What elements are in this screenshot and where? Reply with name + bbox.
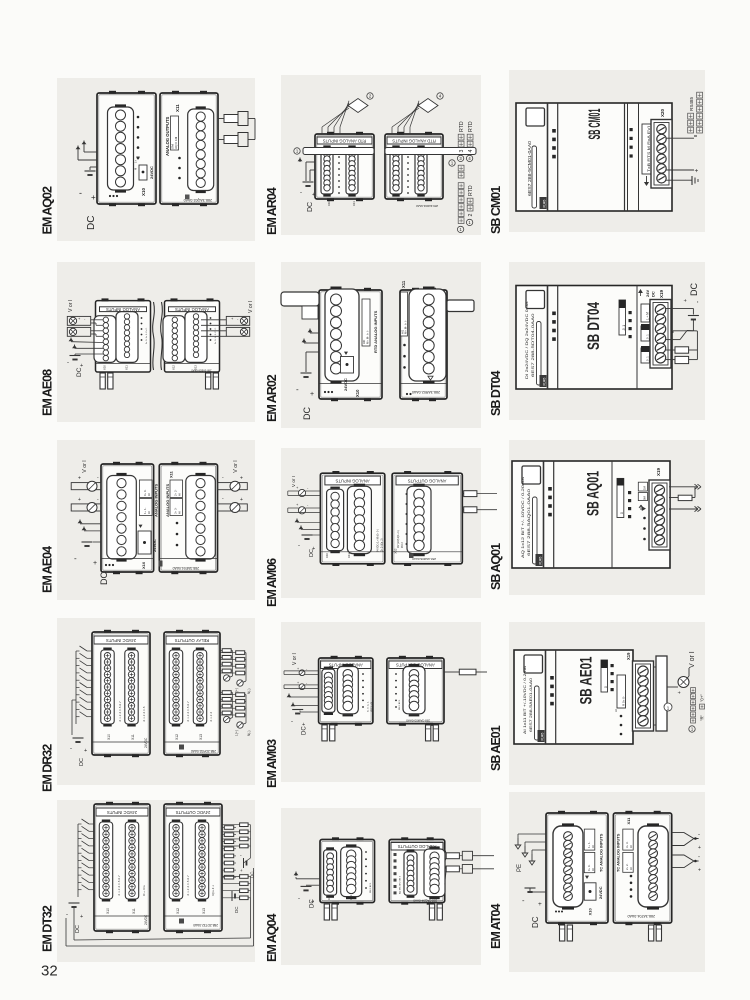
svg-text:EM AR04: EM AR04 [265,187,279,235]
svg-text:.0 .1: .0 .1 [646,356,650,362]
svg-text:+: + [78,476,81,482]
svg-text:+: + [297,667,299,671]
svg-text:24VDC: 24VDC [598,886,603,899]
svg-text:PIU 2: PIU 2 [402,542,404,548]
svg-text:288-2DT32-0AA0: 288-2DT32-0AA0 [193,923,218,927]
svg-text:M: M [134,168,138,170]
svg-text:2: 2 [468,214,474,217]
svg-text:X11: X11 [626,817,631,825]
svg-text:.0 .1 .2 .3 .4 .5 .6 .7: .0 .1 .2 .3 .4 .5 .6 .7 [119,701,122,722]
svg-text:+: + [683,299,689,302]
svg-text:-: - [291,719,293,725]
svg-text:AI: AI [591,868,595,871]
svg-text:X10: X10 [106,908,110,914]
svg-text:DC: DC [79,758,85,766]
svg-text:24VDC: 24VDC [343,378,348,391]
svg-text:AI1: AI1 [401,329,405,334]
svg-text:AI 1x11 BIT +/-10VDC / 0-2mA: AI 1x11 BIT +/-10VDC / 0-2mA [522,666,527,734]
svg-text:RTD: RTD [459,121,465,132]
svg-text:+: + [677,691,683,694]
svg-text:6ES7 288-5AQ01-0AA0: 6ES7 288-5AQ01-0AA0 [526,488,531,556]
svg-text:EM AE08: EM AE08 [41,369,55,416]
svg-text:.0 .1 .2 .3 .4 .5: .0 .1 .2 .3 .4 .5 [143,706,146,722]
svg-text:+: + [93,560,97,567]
svg-text:24VDC: 24VDC [144,737,148,748]
svg-text:-: - [698,855,700,861]
svg-text:SB DT04: SB DT04 [585,301,603,350]
svg-text:32: 32 [41,963,58,980]
svg-text:EM DT32: EM DT32 [41,905,55,952]
svg-text:X11: X11 [131,734,135,740]
svg-text:RTD ANALOG INPUTS: RTD ANALOG INPUTS [373,310,378,353]
svg-text:0+ 0- 1+ 1-: 0+ 0- 1+ 1- [368,701,370,712]
svg-text:-: - [296,385,299,394]
svg-text:SB AQ01: SB AQ01 [489,543,503,590]
svg-text:0M 0 1M 1: 0M 0 1M 1 [370,882,372,893]
svg-text:X11: X11 [175,104,180,112]
svg-text:SB CM01: SB CM01 [586,109,604,140]
svg-text:.0 .1 .2 .3 .4 .5 .6 .7: .0 .1 .2 .3 .4 .5 .6 .7 [187,875,190,896]
svg-text:AI: AI [629,845,633,848]
svg-text:X11: X11 [401,280,406,288]
svg-text:288-3AR04-0AA0: 288-3AR04-0AA0 [416,204,438,208]
svg-text:RTD ANALOG INPUTS: RTD ANALOG INPUTS [323,138,367,143]
svg-text:0M: 0M [643,495,647,500]
svg-text:24VDC INPUTS: 24VDC INPUTS [107,810,137,815]
svg-text:288-3AR02-0AA0: 288-3AR02-0AA0 [412,390,440,394]
svg-text:X10: X10 [327,201,331,206]
svg-text:X20: X20 [660,108,665,117]
svg-text:I2V (L M) 2(0+ 0-): I2V (L M) 2(0+ 0-) [398,530,400,548]
svg-text:EM AM06: EM AM06 [265,558,279,607]
svg-text:AI: AI [614,709,618,712]
svg-text:288-3AQ04-0AA0: 288-3AQ04-0AA0 [413,898,437,902]
svg-text:X12: X12 [172,365,176,370]
svg-text:V or I: V or I [689,651,696,668]
svg-text:SB AQ01: SB AQ01 [585,471,603,516]
svg-text:6ES7 288-5CM01-0AA0: 6ES7 288-5CM01-0AA0 [527,141,532,196]
svg-text:RTD: RTD [468,121,474,132]
svg-text:-: - [66,912,68,918]
svg-text:DC: DC [234,906,239,913]
svg-text:AQ 1x12 BIT +/- 10VDC / 0-20mA: AQ 1x12 BIT +/- 10VDC / 0-20mA [520,477,525,558]
svg-text:1M: 1M [643,485,647,490]
svg-text:24VDC OUTPUTS: 24VDC OUTPUTS [175,810,210,815]
svg-text:SB CM01: SB CM01 [489,186,503,234]
svg-text:"0+": "0+" [700,694,705,702]
svg-text:-: - [298,543,300,549]
svg-text:ANALOG INPUTS: ANALOG INPUTS [335,478,369,483]
svg-text:TC ANALOG INPUTS: TC ANALOG INPUTS [599,833,604,872]
svg-text:RTD ANALOG INPUTS: RTD ANALOG INPUTS [392,138,436,143]
svg-text:SM: SM [171,144,175,149]
svg-text:L(+): L(+) [235,730,239,736]
svg-text:6ES7 288-5DT04-0AA0: 6ES7 288-5DT04-0AA0 [530,312,535,377]
svg-text:-: - [67,360,69,366]
svg-text:+: + [297,681,299,685]
svg-text:-: - [74,554,77,563]
svg-text:3: 3 [459,150,465,153]
svg-text:M+ M- I+ I-: M+ M- I+ I- [366,330,370,344]
svg-text:DC: DC [307,202,314,212]
svg-text:DC: DC [75,925,81,933]
svg-text:X12: X12 [175,734,179,740]
svg-text:DC: DC [689,283,699,296]
svg-text:DC: DC [86,216,97,230]
svg-text:X10: X10 [103,365,107,370]
svg-text:AI: AI [629,867,633,870]
svg-text:288-3AE08-0AA0: 288-3AE08-0AA0 [191,369,212,373]
svg-text:X11: X11 [125,365,129,370]
svg-text:R 0+ 0-: R 0+ 0- [622,696,626,706]
svg-text:.0 .1 .2 .3 .4 .5 .6 .7: .0 .1 .2 .3 .4 .5 .6 .7 [118,875,121,896]
svg-text:EM AQ04: EM AQ04 [265,914,279,962]
svg-text:24VDC: 24VDC [152,539,157,552]
svg-text:V or I: V or I [82,460,88,472]
svg-text:SB AE01: SB AE01 [578,657,596,705]
svg-text:V or I: V or I [292,653,298,665]
svg-text:EM DR32: EM DR32 [41,744,55,792]
svg-text:X19: X19 [659,289,664,298]
svg-text:ANALOG INPUTS: ANALOG INPUTS [165,484,170,517]
svg-text:24V: 24V [645,290,650,297]
svg-text:288-3AT04-0AA0: 288-3AT04-0AA0 [627,914,655,918]
svg-text:ANALOG INPUTS: ANALOG INPUTS [154,484,159,517]
svg-text:RJ45: RJ45 [543,199,547,207]
svg-text:+: + [78,497,81,503]
svg-text:AI0: AI0 [362,339,366,344]
svg-text:-: - [70,746,72,752]
svg-text:N(-): N(-) [247,731,251,737]
svg-text:EM AQ02: EM AQ02 [41,186,55,234]
svg-text:0+ 0- 1+ 1- 2+ 2-: 0+ 0- 1+ 1- 2+ 2- [215,327,217,344]
svg-text:AQ 0 1M: AQ 0 1M [174,136,178,149]
svg-text:AI: AI [178,493,182,496]
svg-text:RJ45: RJ45 [539,556,543,564]
svg-text:RJ45: RJ45 [541,732,545,740]
svg-text:VDC L+ M: VDC L+ M [371,702,373,712]
svg-text:RTD: RTD [468,185,474,196]
svg-text:.0 .1 .2 .3: .0 .1 .2 .3 [210,711,213,722]
svg-text:X10: X10 [327,895,331,900]
svg-text:X13: X13 [199,734,203,740]
svg-text:6ES7 288-5AE01-0AA0: 6ES7 288-5AE01-0AA0 [528,677,533,732]
svg-text:L + M: L + M [646,312,650,320]
svg-text:0M 0 1M 1: 0M 0 1M 1 [399,699,401,710]
svg-text:24VDC INPUTS: 24VDC INPUTS [106,638,136,643]
svg-text:-: - [298,896,300,902]
svg-text:+: + [538,901,542,908]
svg-text:DC: DC [99,572,109,585]
svg-text:+: + [310,391,314,398]
svg-text:DQ a .0 .1: DQ a .0 .1 [212,884,215,896]
svg-text:AI: AI [591,845,595,848]
svg-text:ANALOG OUTPUTS: ANALOG OUTPUTS [408,478,447,483]
svg-text:0: 0 [620,512,624,514]
svg-text:AI: AI [178,511,182,514]
svg-text:X13: X13 [202,908,206,914]
svg-text:-: - [300,190,302,196]
svg-text:.0 .1: .0 .1 [646,334,650,340]
svg-text:+: + [240,476,243,482]
svg-text:+: + [80,914,83,920]
svg-text:PE: PE [517,864,523,872]
svg-text:DC: DC [651,291,656,297]
svg-text:AQ SM 2M 2 3M 3: AQ SM 2M 2 3M 3 [399,875,402,894]
svg-text:ANALOG OUTPUTS: ANALOG OUTPUTS [165,116,170,156]
svg-text:X19: X19 [656,467,661,476]
svg-text:DC: DC [309,549,315,557]
svg-text:RJ45: RJ45 [543,377,547,385]
svg-text:+: + [91,193,96,202]
svg-text:X11: X11 [169,470,174,478]
svg-text:4: 4 [468,150,474,153]
svg-text:X11: X11 [132,908,136,914]
svg-text:+: + [694,169,701,173]
svg-text:.0 .1: .0 .1 [622,325,626,331]
svg-text:+: + [312,192,315,198]
svg-text:24VDC: 24VDC [149,166,154,179]
svg-text:288-3AE04-0AA0: 288-3AE04-0AA0 [172,566,199,570]
svg-text:X12: X12 [394,548,398,553]
svg-text:+: + [698,868,701,874]
svg-text:V or I: V or I [233,460,239,472]
svg-text:DC: DC [310,899,316,908]
svg-text:X11: X11 [352,201,356,206]
svg-text:-: - [698,832,700,838]
svg-text:X19: X19 [626,652,631,660]
svg-text:L+: L+ [134,160,138,163]
svg-text:-: - [79,188,82,198]
svg-text:+: + [84,748,87,754]
svg-text:DC: DC [76,367,83,377]
svg-text:EM AM03: EM AM03 [265,739,279,788]
svg-text:V or I: V or I [248,301,254,313]
svg-text:X10: X10 [325,553,329,558]
svg-text:-: - [695,301,702,303]
svg-text:X10: X10 [141,187,146,196]
svg-text:AI: AI [147,511,151,514]
svg-text:X11: X11 [347,553,351,558]
svg-text:X10: X10 [355,389,360,397]
svg-text:"R": "R" [700,714,705,721]
svg-text:SB AE01: SB AE01 [489,725,503,771]
svg-text:EM AE04: EM AE04 [41,546,55,593]
svg-text:24 VDC (L+ M) (0+ 0-): 24 VDC (L+ M) (0+ 0-) [378,529,380,552]
svg-text:DC: DC [531,916,540,928]
svg-text:+: + [240,497,243,503]
svg-text:+: + [698,845,701,851]
svg-text:0: 0 [604,686,608,688]
svg-text:AI: AI [147,493,151,496]
svg-text:X12: X12 [176,908,180,914]
svg-text:0+ 0- 1+ 1- 2+ 2-: 0+ 0- 1+ 1- 2+ 2- [146,327,148,344]
svg-text:.0 .1 .2 .3 .4 .5 .6 .7: .0 .1 .2 .3 .4 .5 .6 .7 [187,701,190,722]
svg-text:RELAY OUTPUTS: RELAY OUTPUTS [175,638,210,643]
svg-text:DC: DC [302,407,312,420]
svg-text:X10: X10 [141,561,146,569]
svg-text:EM AT04: EM AT04 [489,904,503,949]
svg-text:V or I: V or I [68,300,74,312]
svg-text:+: + [240,868,243,873]
svg-text:DC: DC [302,726,308,735]
svg-text:SB DT04: SB DT04 [489,371,503,416]
svg-text:X10: X10 [107,734,111,740]
svg-text:EM AR02: EM AR02 [265,374,279,422]
svg-text:N(-): N(-) [247,689,251,695]
svg-text:DI 2x24VDC / DQ 2x24VDC 0.5A: DI 2x24VDC / DQ 2x24VDC 0.5A [524,301,529,379]
svg-text:M L+ DI a: M L+ DI a [143,885,146,896]
svg-text:288-2DR32-0AA0: 288-2DR32-0AA0 [191,749,216,753]
svg-text:288-3AM03-0AA0: 288-3AM03-0AA0 [406,718,430,722]
svg-text:X11: X11 [349,895,353,900]
svg-text:(2+ 2-)(0a .3): (2+ 2-)(0a .3) [382,538,384,552]
svg-text:X10: X10 [587,908,592,916]
svg-text:TC ANALOG INPUTS: TC ANALOG INPUTS [615,833,620,872]
svg-text:288-3AM06-0AA0: 288-3AM06-0AA0 [412,557,436,561]
svg-text:RS485: RS485 [689,97,694,111]
